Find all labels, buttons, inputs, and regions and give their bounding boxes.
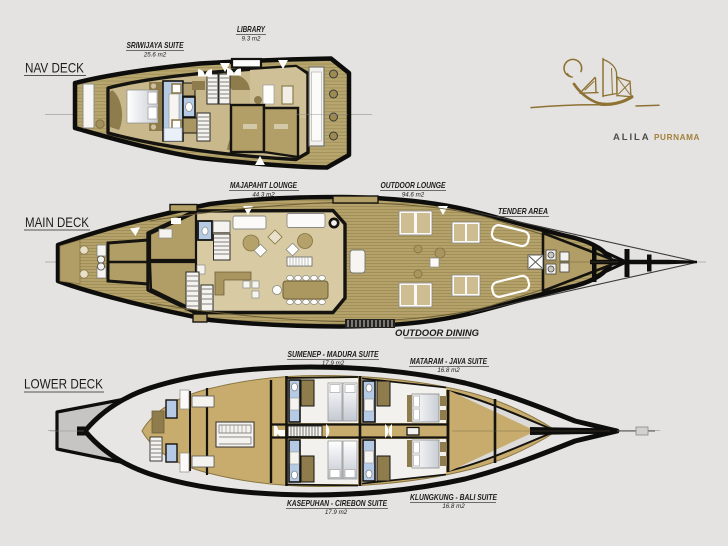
svg-text:MAIN DECK: MAIN DECK	[25, 214, 90, 230]
svg-text:16.8 m2: 16.8 m2	[442, 503, 465, 510]
svg-text:OUTDOOR LOUNGE: OUTDOOR LOUNGE	[381, 181, 446, 190]
svg-text:ALILA: ALILA	[613, 132, 650, 143]
svg-text:9.3 m2: 9.3 m2	[242, 36, 261, 43]
svg-text:LOWER DECK: LOWER DECK	[24, 376, 104, 392]
svg-text:KLUNGKUNG - BALI SUITE: KLUNGKUNG - BALI SUITE	[410, 493, 497, 502]
svg-text:SRIWIJAYA SUITE: SRIWIJAYA SUITE	[127, 41, 184, 50]
svg-text:44.3 m2: 44.3 m2	[252, 192, 275, 199]
svg-text:TENDER AREA: TENDER AREA	[498, 207, 548, 216]
svg-text:PURNAMA: PURNAMA	[654, 133, 700, 142]
svg-text:OUTDOOR DINING: OUTDOOR DINING	[395, 327, 479, 338]
svg-text:94.6 m2: 94.6 m2	[402, 192, 425, 199]
svg-text:MATARAM - JAVA SUITE: MATARAM - JAVA SUITE	[410, 357, 487, 366]
svg-text:17.9 m2: 17.9 m2	[325, 509, 348, 516]
svg-text:17.9 m2: 17.9 m2	[322, 360, 345, 367]
svg-text:SUMENEP - MADURA SUITE: SUMENEP - MADURA SUITE	[288, 350, 379, 359]
svg-text:KASEPUHAN - CIREBON SUITE: KASEPUHAN - CIREBON SUITE	[287, 499, 387, 508]
svg-text:16.8 m2: 16.8 m2	[437, 367, 460, 374]
svg-text:MAJAPAHIT LOUNGE: MAJAPAHIT LOUNGE	[230, 181, 297, 190]
svg-text:NAV DECK: NAV DECK	[25, 60, 85, 76]
svg-text:LIBRARY: LIBRARY	[237, 25, 266, 34]
svg-text:25.6 m2: 25.6 m2	[143, 52, 167, 59]
